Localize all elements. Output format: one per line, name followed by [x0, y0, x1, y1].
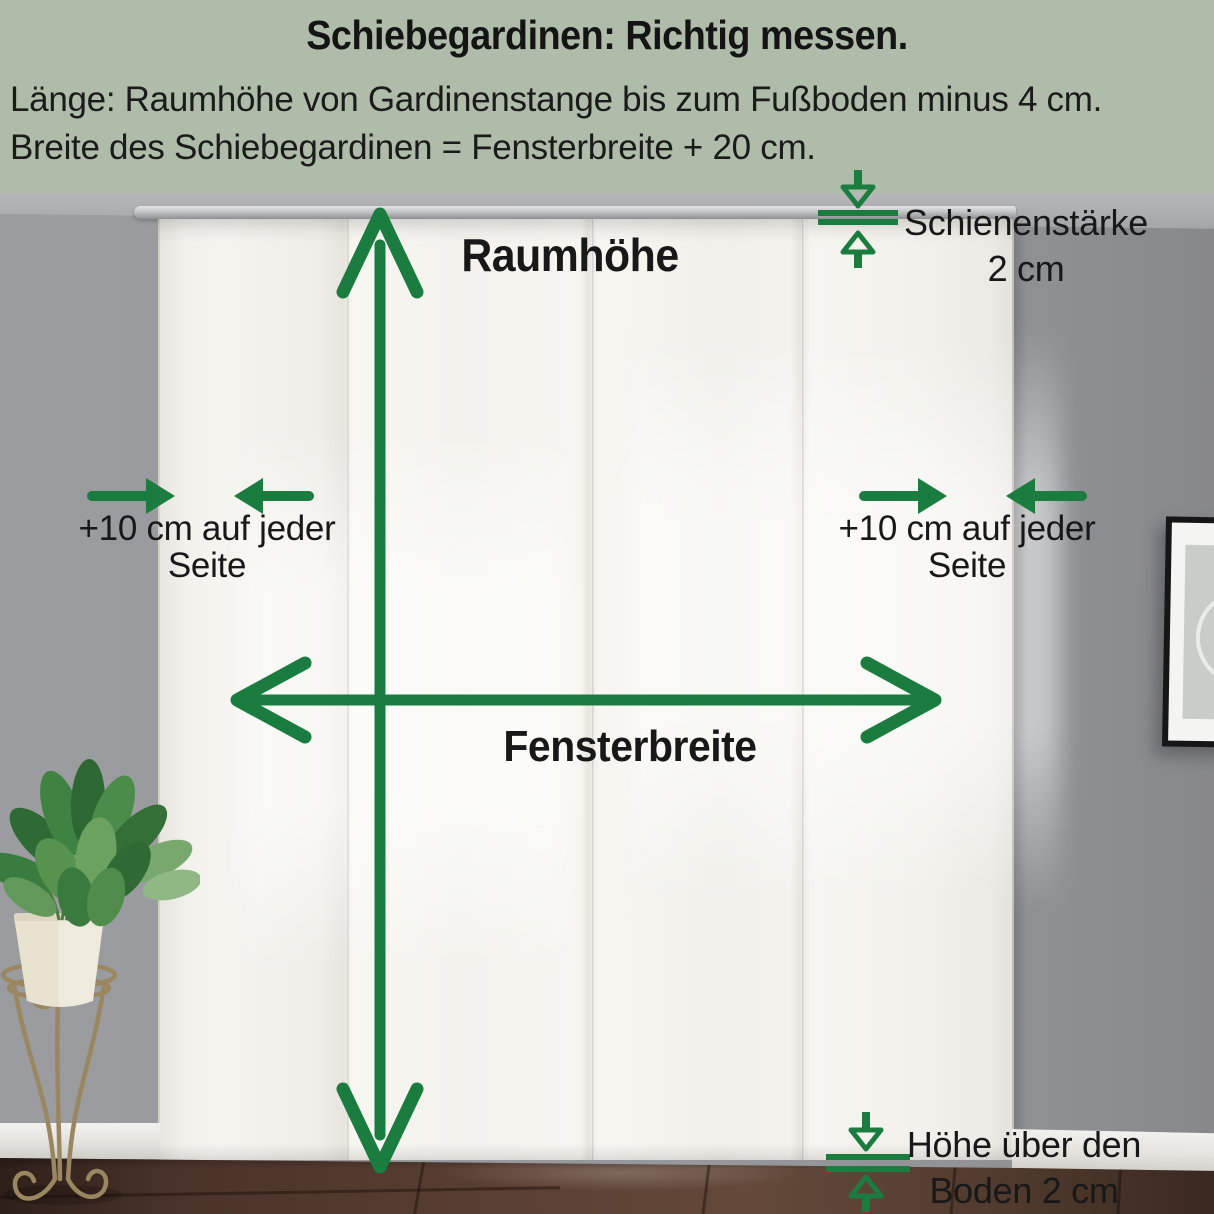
panel-seam: [802, 219, 805, 1160]
left-margin-label-line2: Seite: [62, 547, 352, 584]
print-circle-motif: [1195, 591, 1214, 684]
rail-thickness-label-line1: Schienenstärke: [898, 200, 1154, 246]
right-margin-label-line1: +10 cm auf jeder: [822, 510, 1112, 547]
curtain-light-reflection: [240, 419, 570, 979]
rail-thickness-label: Schienenstärke 2 cm: [898, 200, 1154, 292]
page-title: Schiebegardinen: Richtig messen.: [49, 12, 1166, 59]
room-height-label: Raumhöhe: [449, 228, 691, 282]
header-banner: Schiebegardinen: Richtig messen. Länge: …: [0, 0, 1214, 193]
potted-plant: [0, 755, 200, 1214]
left-margin-label: +10 cm auf jeder Seite: [62, 510, 352, 584]
floor-gap-label: Höhe über den Boden 2 cm: [894, 1122, 1154, 1214]
curtain-rail: [134, 206, 1016, 219]
infographic-page: Schiebegardinen: Richtig messen. Länge: …: [0, 0, 1214, 1214]
picture-frame-mat: [1168, 523, 1214, 742]
picture-frame: [1162, 516, 1214, 747]
plant-foliage: [0, 758, 200, 930]
floor-tile-line: [412, 1155, 427, 1214]
sliding-curtain-panels: [158, 219, 1014, 1160]
curtain-shadow: [1012, 219, 1028, 1160]
instruction-line-width: Breite des Schiebegardinen = Fensterbrei…: [10, 128, 1200, 168]
floor-tile-line: [701, 1155, 713, 1214]
right-margin-label: +10 cm auf jeder Seite: [822, 510, 1112, 584]
floor-gap-label-line2: Boden 2 cm: [894, 1168, 1154, 1214]
right-margin-label-line2: Seite: [822, 547, 1112, 584]
window-width-label: Fensterbreite: [481, 722, 779, 772]
rail-thickness-label-line2: 2 cm: [898, 246, 1154, 292]
panel-seam: [592, 219, 595, 1160]
left-margin-label-line1: +10 cm auf jeder: [62, 510, 352, 547]
plant-pot: [14, 913, 104, 1007]
instruction-line-length: Länge: Raumhöhe von Gardinenstange bis z…: [10, 80, 1200, 120]
picture-frame-print: [1182, 545, 1214, 720]
room-photo: [0, 193, 1214, 1214]
curtain-light-reflection: [630, 329, 1060, 909]
panel-seam: [347, 219, 350, 1160]
floor-gap-label-line1: Höhe über den: [894, 1122, 1154, 1168]
